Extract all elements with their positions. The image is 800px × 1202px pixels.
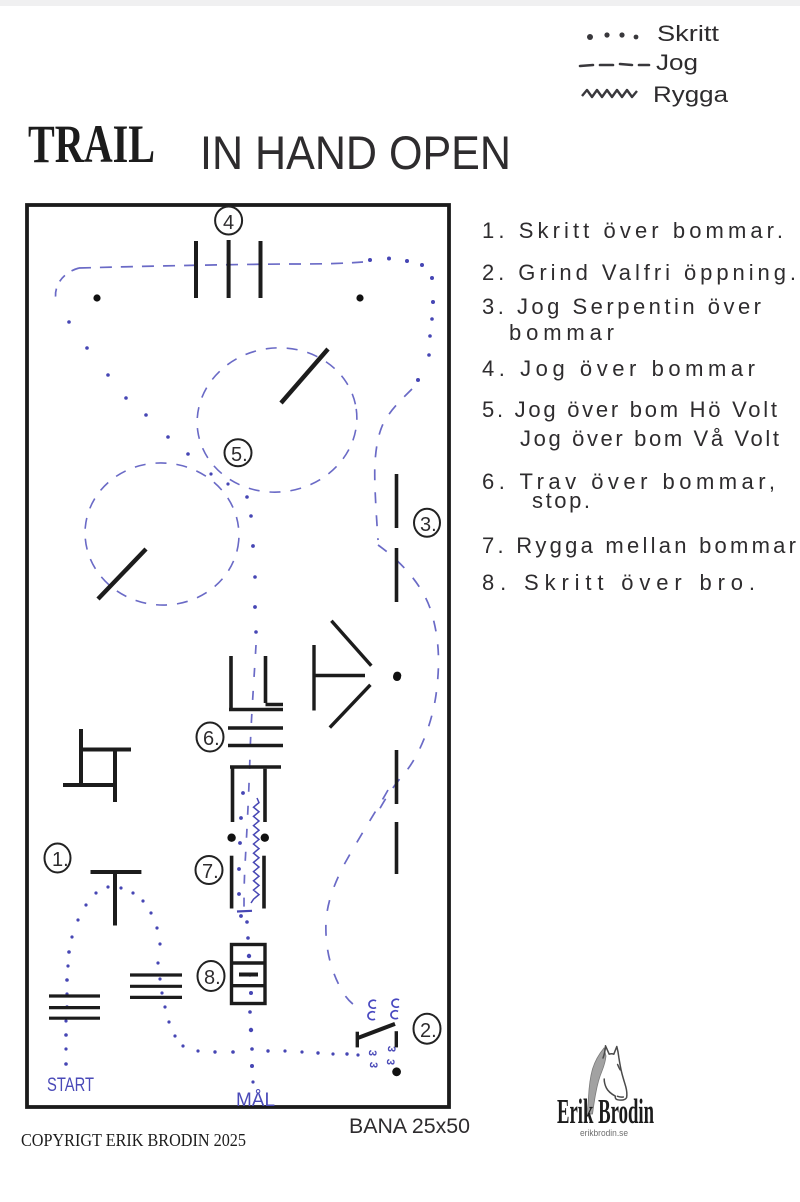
svg-text:erikbrodin.se: erikbrodin.se	[580, 1128, 628, 1139]
svg-text:3: 3	[366, 1049, 378, 1056]
svg-text:4. Jog över bommar: 4. Jog över bommar	[482, 356, 755, 381]
svg-text:START: START	[47, 1075, 94, 1096]
svg-text:IN HAND OPEN: IN HAND OPEN	[200, 126, 511, 179]
svg-text:2.: 2.	[420, 1020, 437, 1042]
svg-text:COPYRIGT ERIK BRODIN 2025: COPYRIGT ERIK BRODIN 2025	[21, 1130, 246, 1150]
svg-text:2. Grind Valfri öppning.: 2. Grind Valfri öppning.	[482, 260, 796, 285]
svg-text:MÅL: MÅL	[236, 1090, 275, 1111]
svg-text:TRAIL: TRAIL	[28, 114, 155, 174]
svg-text:Jog över bom Vå Volt: Jog över bom Vå Volt	[520, 426, 779, 451]
svg-text:Jog: Jog	[656, 50, 698, 75]
svg-text:7.: 7.	[202, 861, 219, 883]
svg-text:6.: 6.	[203, 728, 220, 750]
svg-text:3: 3	[384, 1058, 396, 1065]
svg-text:Erik Brodin: Erik Brodin	[557, 1092, 654, 1131]
svg-text:3. Jog Serpentin över: 3. Jog Serpentin över	[482, 294, 761, 319]
svg-text:1.: 1.	[52, 849, 69, 871]
svg-text:3: 3	[367, 1061, 379, 1068]
svg-text:8.: 8.	[204, 967, 221, 989]
svg-text:Skritt: Skritt	[657, 21, 719, 46]
svg-text:3: 3	[385, 1045, 397, 1052]
svg-text:3.: 3.	[420, 514, 437, 536]
svg-text:4: 4	[223, 212, 234, 234]
svg-text:Rygga: Rygga	[653, 82, 729, 107]
svg-text:5.: 5.	[231, 444, 248, 466]
svg-text:stop.: stop.	[532, 488, 590, 513]
svg-text:BANA 25x50: BANA 25x50	[349, 1115, 470, 1138]
svg-text:6. Trav över bommar,: 6. Trav över bommar,	[482, 469, 775, 494]
